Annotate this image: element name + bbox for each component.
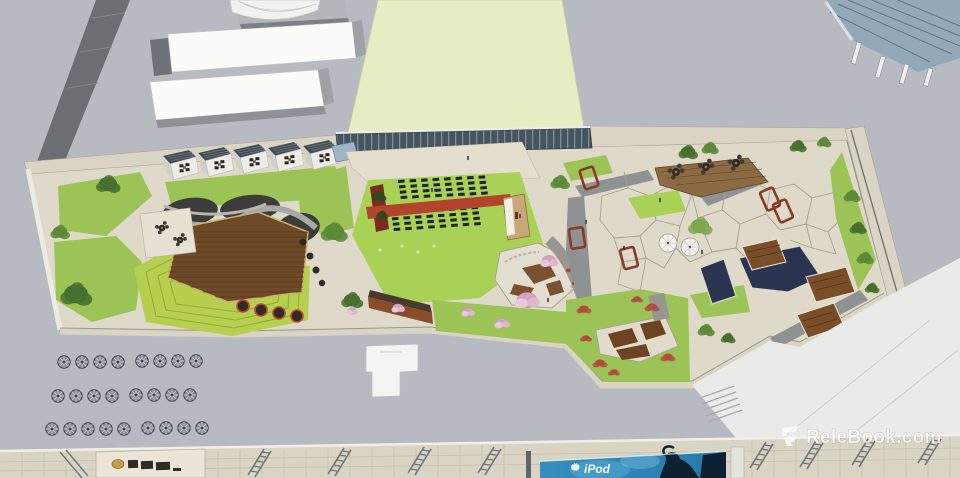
parasol: [659, 234, 677, 252]
render-canvas: iPod ReleBook.com: [0, 0, 960, 478]
left-billboard-logo: [112, 460, 124, 469]
watermark-text: ReleBook.com: [806, 427, 942, 448]
watermark: ReleBook.com: [782, 426, 942, 448]
pale-roof-lawn: [348, 0, 584, 133]
scene-svg: iPod ReleBook.com: [0, 0, 960, 478]
ipod-wordmark: iPod: [584, 462, 611, 476]
wall-pillar-white: [731, 447, 744, 478]
left-billboard: [96, 449, 205, 478]
parasol: [681, 238, 699, 256]
wall-post-dark: [526, 451, 531, 478]
seating-square: [140, 208, 196, 258]
